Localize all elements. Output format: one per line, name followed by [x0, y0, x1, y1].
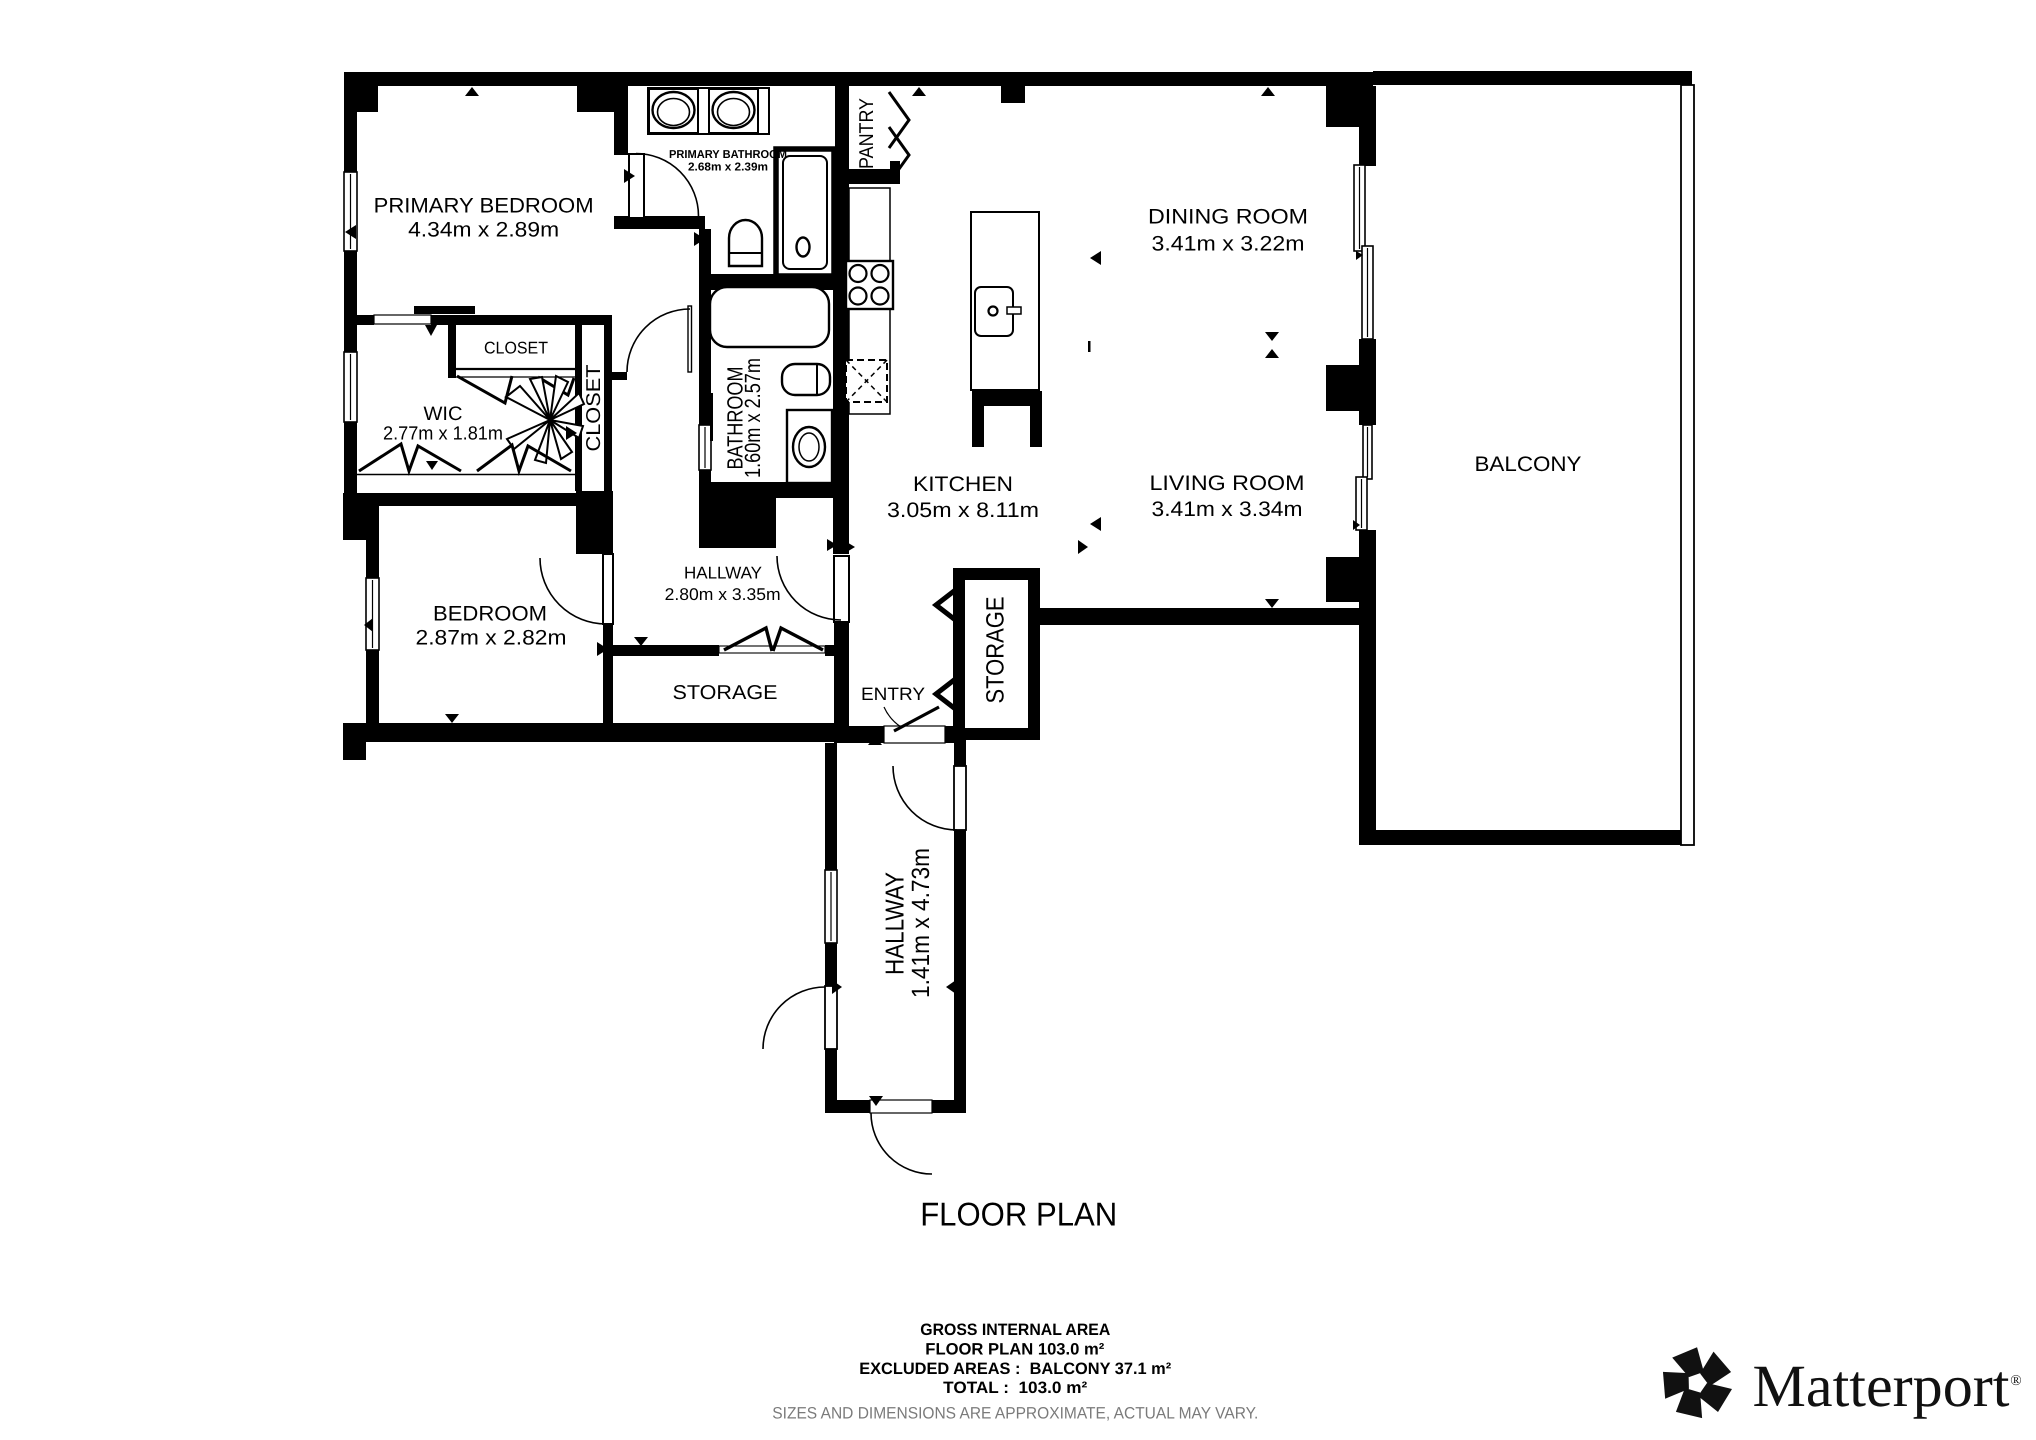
- svg-text:EXCLUDED AREAS : BALCONY 37.1: EXCLUDED AREAS : BALCONY 37.1 m²: [859, 1360, 1171, 1378]
- svg-text:LIVING ROOM: LIVING ROOM: [1150, 472, 1305, 495]
- svg-text:FLOOR PLAN 103.0 m²: FLOOR PLAN 103.0 m²: [925, 1341, 1105, 1359]
- svg-text:2.68m x 2.39m: 2.68m x 2.39m: [688, 162, 768, 174]
- svg-text:GROSS INTERNAL AREA: GROSS INTERNAL AREA: [920, 1321, 1110, 1339]
- svg-text:HALLWAY: HALLWAY: [880, 872, 910, 975]
- svg-text:4.34m x 2.89m: 4.34m x 2.89m: [408, 219, 559, 242]
- svg-text:PRIMARY BATHROOM: PRIMARY BATHROOM: [669, 149, 787, 161]
- svg-text:PRIMARY BEDROOM: PRIMARY BEDROOM: [374, 195, 594, 218]
- svg-text:®: ®: [2010, 1373, 2021, 1389]
- svg-text:HALLWAY: HALLWAY: [684, 564, 762, 583]
- svg-text:3.41m x 3.34m: 3.41m x 3.34m: [1152, 498, 1303, 521]
- svg-text:WIC: WIC: [424, 403, 463, 425]
- svg-text:1.41m x 4.73m: 1.41m x 4.73m: [907, 848, 935, 998]
- svg-text:FLOOR PLAN: FLOOR PLAN: [920, 1195, 1117, 1232]
- svg-text:2.80m x 3.35m: 2.80m x 3.35m: [665, 585, 781, 604]
- svg-text:3.05m x 8.11m: 3.05m x 8.11m: [887, 499, 1039, 522]
- svg-text:BEDROOM: BEDROOM: [433, 603, 547, 626]
- svg-text:2.77m x 1.81m: 2.77m x 1.81m: [383, 424, 503, 445]
- svg-text:TOTAL : 103.0 m²: TOTAL : 103.0 m²: [943, 1379, 1088, 1397]
- svg-text:Matterport: Matterport: [1753, 1353, 2010, 1419]
- svg-text:STORAGE: STORAGE: [982, 597, 1010, 704]
- svg-text:CLOSET: CLOSET: [583, 365, 605, 452]
- svg-text:PANTRY: PANTRY: [856, 98, 878, 169]
- svg-text:1.60m x 2.57m: 1.60m x 2.57m: [740, 358, 765, 478]
- svg-text:ENTRY: ENTRY: [861, 684, 925, 704]
- svg-text:CLOSET: CLOSET: [484, 339, 548, 358]
- svg-text:2.87m x 2.82m: 2.87m x 2.82m: [416, 627, 567, 650]
- svg-text:DINING ROOM: DINING ROOM: [1148, 206, 1308, 229]
- svg-text:KITCHEN: KITCHEN: [913, 473, 1013, 496]
- svg-text:3.41m x 3.22m: 3.41m x 3.22m: [1152, 233, 1305, 256]
- svg-text:SIZES AND DIMENSIONS ARE APPRO: SIZES AND DIMENSIONS ARE APPROXIMATE, AC…: [772, 1405, 1258, 1423]
- svg-text:STORAGE: STORAGE: [673, 682, 778, 704]
- svg-text:BALCONY: BALCONY: [1475, 453, 1582, 476]
